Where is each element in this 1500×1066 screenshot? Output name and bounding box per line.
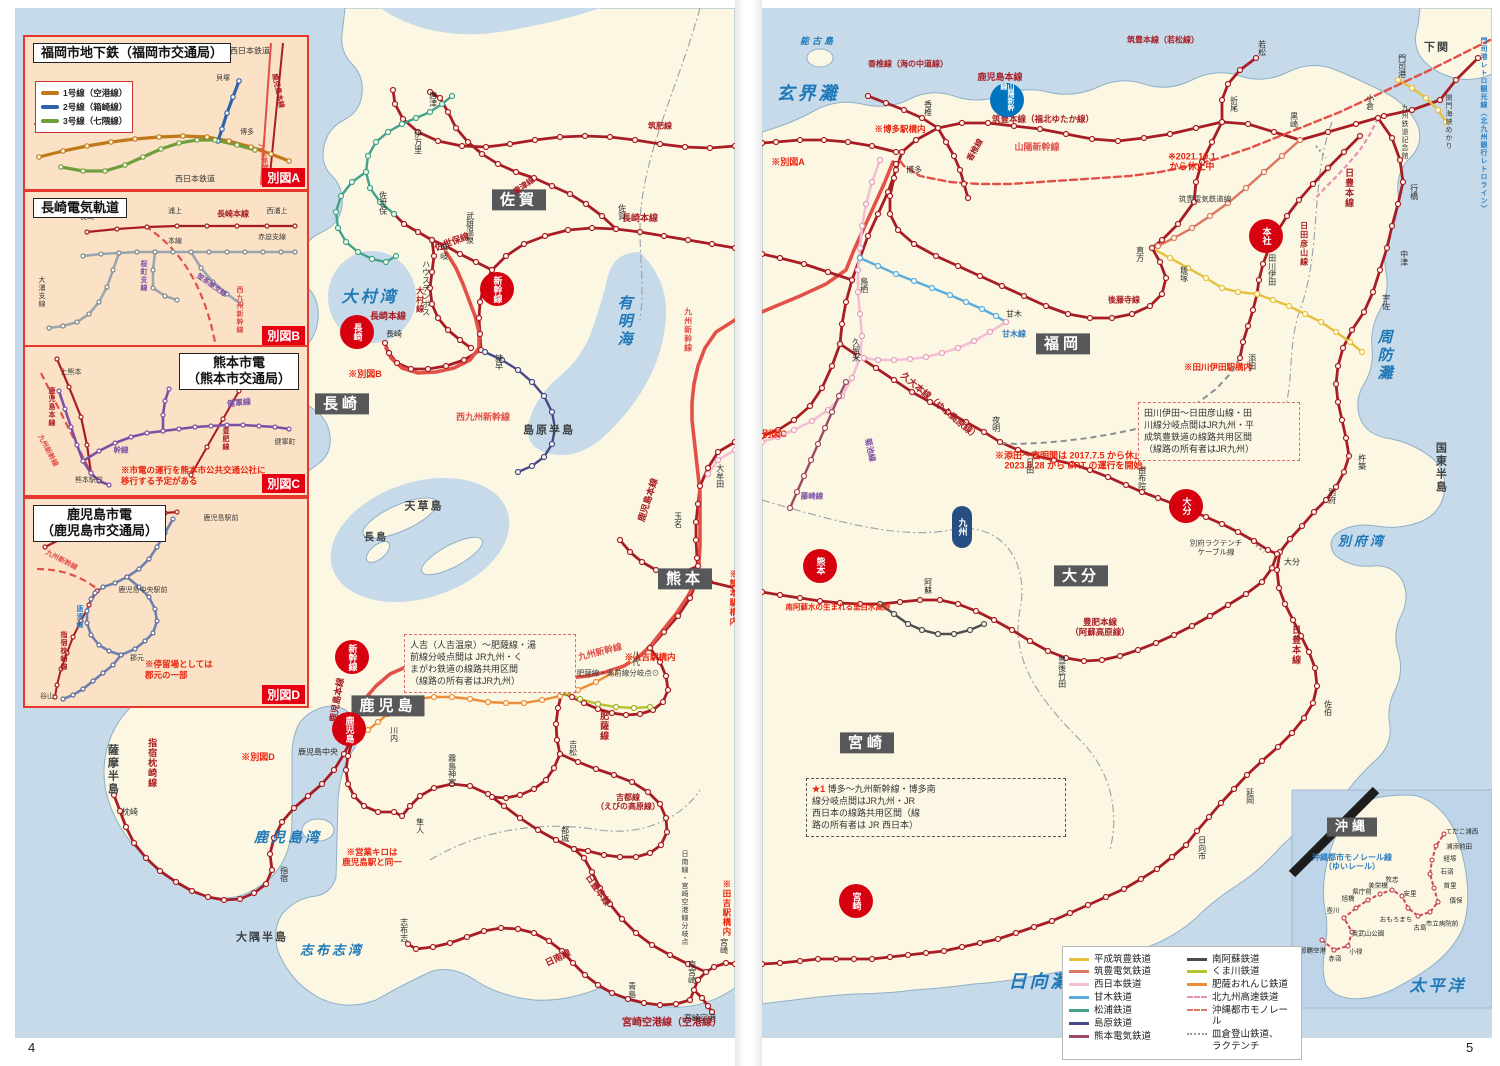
legend-row: 甘木鉄道 — [1069, 992, 1177, 1003]
legend-label: 1号線（空港線） — [63, 87, 127, 99]
page-gutter — [735, 0, 762, 1066]
inset-nagasaki-tram: 長崎電気軌道 長崎本線浦上西浦上赤迫支線本線長崎大浦支線蛍茶屋支線桜町支線西九州… — [23, 190, 309, 349]
legend-row: 肥薩おれんじ鉄道 — [1187, 979, 1295, 990]
legend-label: 筑豊電気鉄道 — [1094, 966, 1151, 977]
private-railway-legend: 平成筑豊鉄道筑豊電気鉄道西日本鉄道甘木鉄道松浦鉄道島原鉄道熊本電気鉄道 南阿蘇鉄… — [1062, 946, 1302, 1060]
inset-legend-row: 2号線（箱崎線） — [41, 101, 127, 113]
inset-tag: 別図A — [262, 168, 305, 187]
legend-swatch — [1069, 1022, 1089, 1025]
shared-track-note-box: ★1 博多～九州新幹線・博多南線分岐点間はJR九州・JR西日本の線路共用区間（線… — [806, 778, 1066, 837]
inset-tag: 別図B — [262, 326, 305, 345]
legend-label: くま川鉄道 — [1212, 966, 1260, 977]
railway-atlas-spread: ★1 博多～九州新幹線・博多南線分岐点間はJR九州・JR西日本の線路共用区間（線… — [0, 0, 1500, 1066]
inset-kumamoto-tram: 熊本市電 （熊本市交通局） ※市電の運行を熊本市公共交通公社に 移行する予定があ… — [23, 345, 309, 497]
inset-tag: 別図C — [262, 474, 305, 493]
legend-row: 北九州高速鉄道 — [1187, 992, 1295, 1003]
legend-row: 松浦鉄道 — [1069, 1005, 1177, 1016]
legend-label: 島原鉄道 — [1094, 1018, 1132, 1029]
legend-label: 皿倉登山鉄道、 ラクテンチ — [1212, 1029, 1279, 1052]
legend-row: 皿倉登山鉄道、 ラクテンチ — [1187, 1029, 1295, 1052]
legend-swatch — [1187, 983, 1207, 986]
inset-legend-row: 1号線（空港線） — [41, 87, 127, 99]
inset-title: 熊本市電 （熊本市交通局） — [179, 353, 299, 390]
legend-swatch — [41, 105, 59, 109]
inset-tag: 別図D — [262, 685, 305, 704]
inset-note: ※市電の運行を熊本市公共交通公社に 移行する予定がある — [121, 465, 266, 487]
legend-swatch — [1069, 996, 1089, 999]
legend-row: 沖縄都市モノレール — [1187, 1005, 1295, 1028]
legend-swatch — [1187, 1033, 1207, 1035]
legend-label: 西日本鉄道 — [1094, 979, 1142, 990]
badge-red: 大分 — [1169, 489, 1203, 523]
inset-fukuoka-subway: 福岡市地下鉄（福岡市交通局） 1号線（空港線）2号線（箱崎線）3号線（七隈線） … — [23, 35, 309, 191]
legend-swatch — [1069, 970, 1089, 973]
badge-red: 長崎 — [340, 315, 374, 349]
badge-red: 本社 — [1249, 219, 1283, 253]
legend-swatch — [1187, 1009, 1207, 1011]
legend-row: くま川鉄道 — [1187, 966, 1295, 977]
inset-title: 鹿児島市電 （鹿児島市交通局） — [33, 505, 166, 542]
badge-red: 宮崎 — [839, 884, 873, 918]
badge-red: 鹿児島 — [332, 712, 366, 746]
badge-red: 新幹線 — [480, 272, 514, 306]
legend-label: 北九州高速鉄道 — [1212, 992, 1279, 1003]
legend-swatch — [41, 119, 59, 123]
legend-swatch — [1187, 996, 1207, 998]
page-number-right: 5 — [1466, 1040, 1473, 1055]
inset-legend-row: 3号線（七隈線） — [41, 115, 127, 127]
page-number-left: 4 — [28, 1040, 35, 1055]
badge-blue: 山陽新幹線 — [990, 83, 1024, 117]
shared-track-note-box: 田川伊田～日田彦山線・田川線分岐点間はJR九州・平成筑豊鉄道の線路共用区間（線路… — [1138, 402, 1300, 461]
legend-row: 筑豊電気鉄道 — [1069, 966, 1177, 977]
legend-swatch — [1069, 958, 1089, 961]
inset-line-legend: 1号線（空港線）2号線（箱崎線）3号線（七隈線） — [35, 81, 133, 133]
legend-swatch — [1069, 983, 1089, 986]
inset-title: 長崎電気軌道 — [33, 198, 127, 218]
badge-blue: 九州 — [952, 506, 972, 548]
legend-label: 熊本電気鉄道 — [1094, 1031, 1151, 1042]
badge-red: 新幹線 — [335, 640, 369, 674]
legend-swatch — [41, 91, 59, 95]
inset-kagoshima-tram: 鹿児島市電 （鹿児島市交通局） ※停留場としては 郡元の一部 鹿児島本線九州新幹… — [23, 497, 309, 708]
legend-row: 熊本電気鉄道 — [1069, 1031, 1177, 1042]
legend-label: 甘木鉄道 — [1094, 992, 1132, 1003]
legend-label: 2号線（箱崎線） — [63, 101, 127, 113]
legend-swatch — [1069, 1035, 1089, 1038]
inset-title: 福岡市地下鉄（福岡市交通局） — [33, 43, 231, 63]
inset-note: ※停留場としては 郡元の一部 — [145, 659, 213, 681]
legend-row: 西日本鉄道 — [1069, 979, 1177, 990]
legend-label: 3号線（七隈線） — [63, 115, 127, 127]
badge-red: 熊本 — [803, 549, 837, 583]
legend-swatch — [1187, 970, 1207, 973]
legend-label: 沖縄都市モノレール — [1212, 1005, 1295, 1028]
shared-track-note-box: 人吉（人吉温泉）～肥薩線・湯前線分岐点間は JR九州・くまがわ鉄道の線路共用区間… — [404, 634, 576, 693]
legend-label: 肥薩おれんじ鉄道 — [1212, 979, 1288, 990]
legend-swatch — [1069, 1009, 1089, 1012]
legend-label: 平成筑豊鉄道 — [1094, 954, 1151, 965]
legend-label: 松浦鉄道 — [1094, 1005, 1132, 1016]
legend-label: 南阿蘇鉄道 — [1212, 954, 1260, 965]
legend-row: 南阿蘇鉄道 — [1187, 954, 1295, 965]
legend-row: 島原鉄道 — [1069, 1018, 1177, 1029]
legend-swatch — [1187, 958, 1207, 961]
legend-row: 平成筑豊鉄道 — [1069, 954, 1177, 965]
